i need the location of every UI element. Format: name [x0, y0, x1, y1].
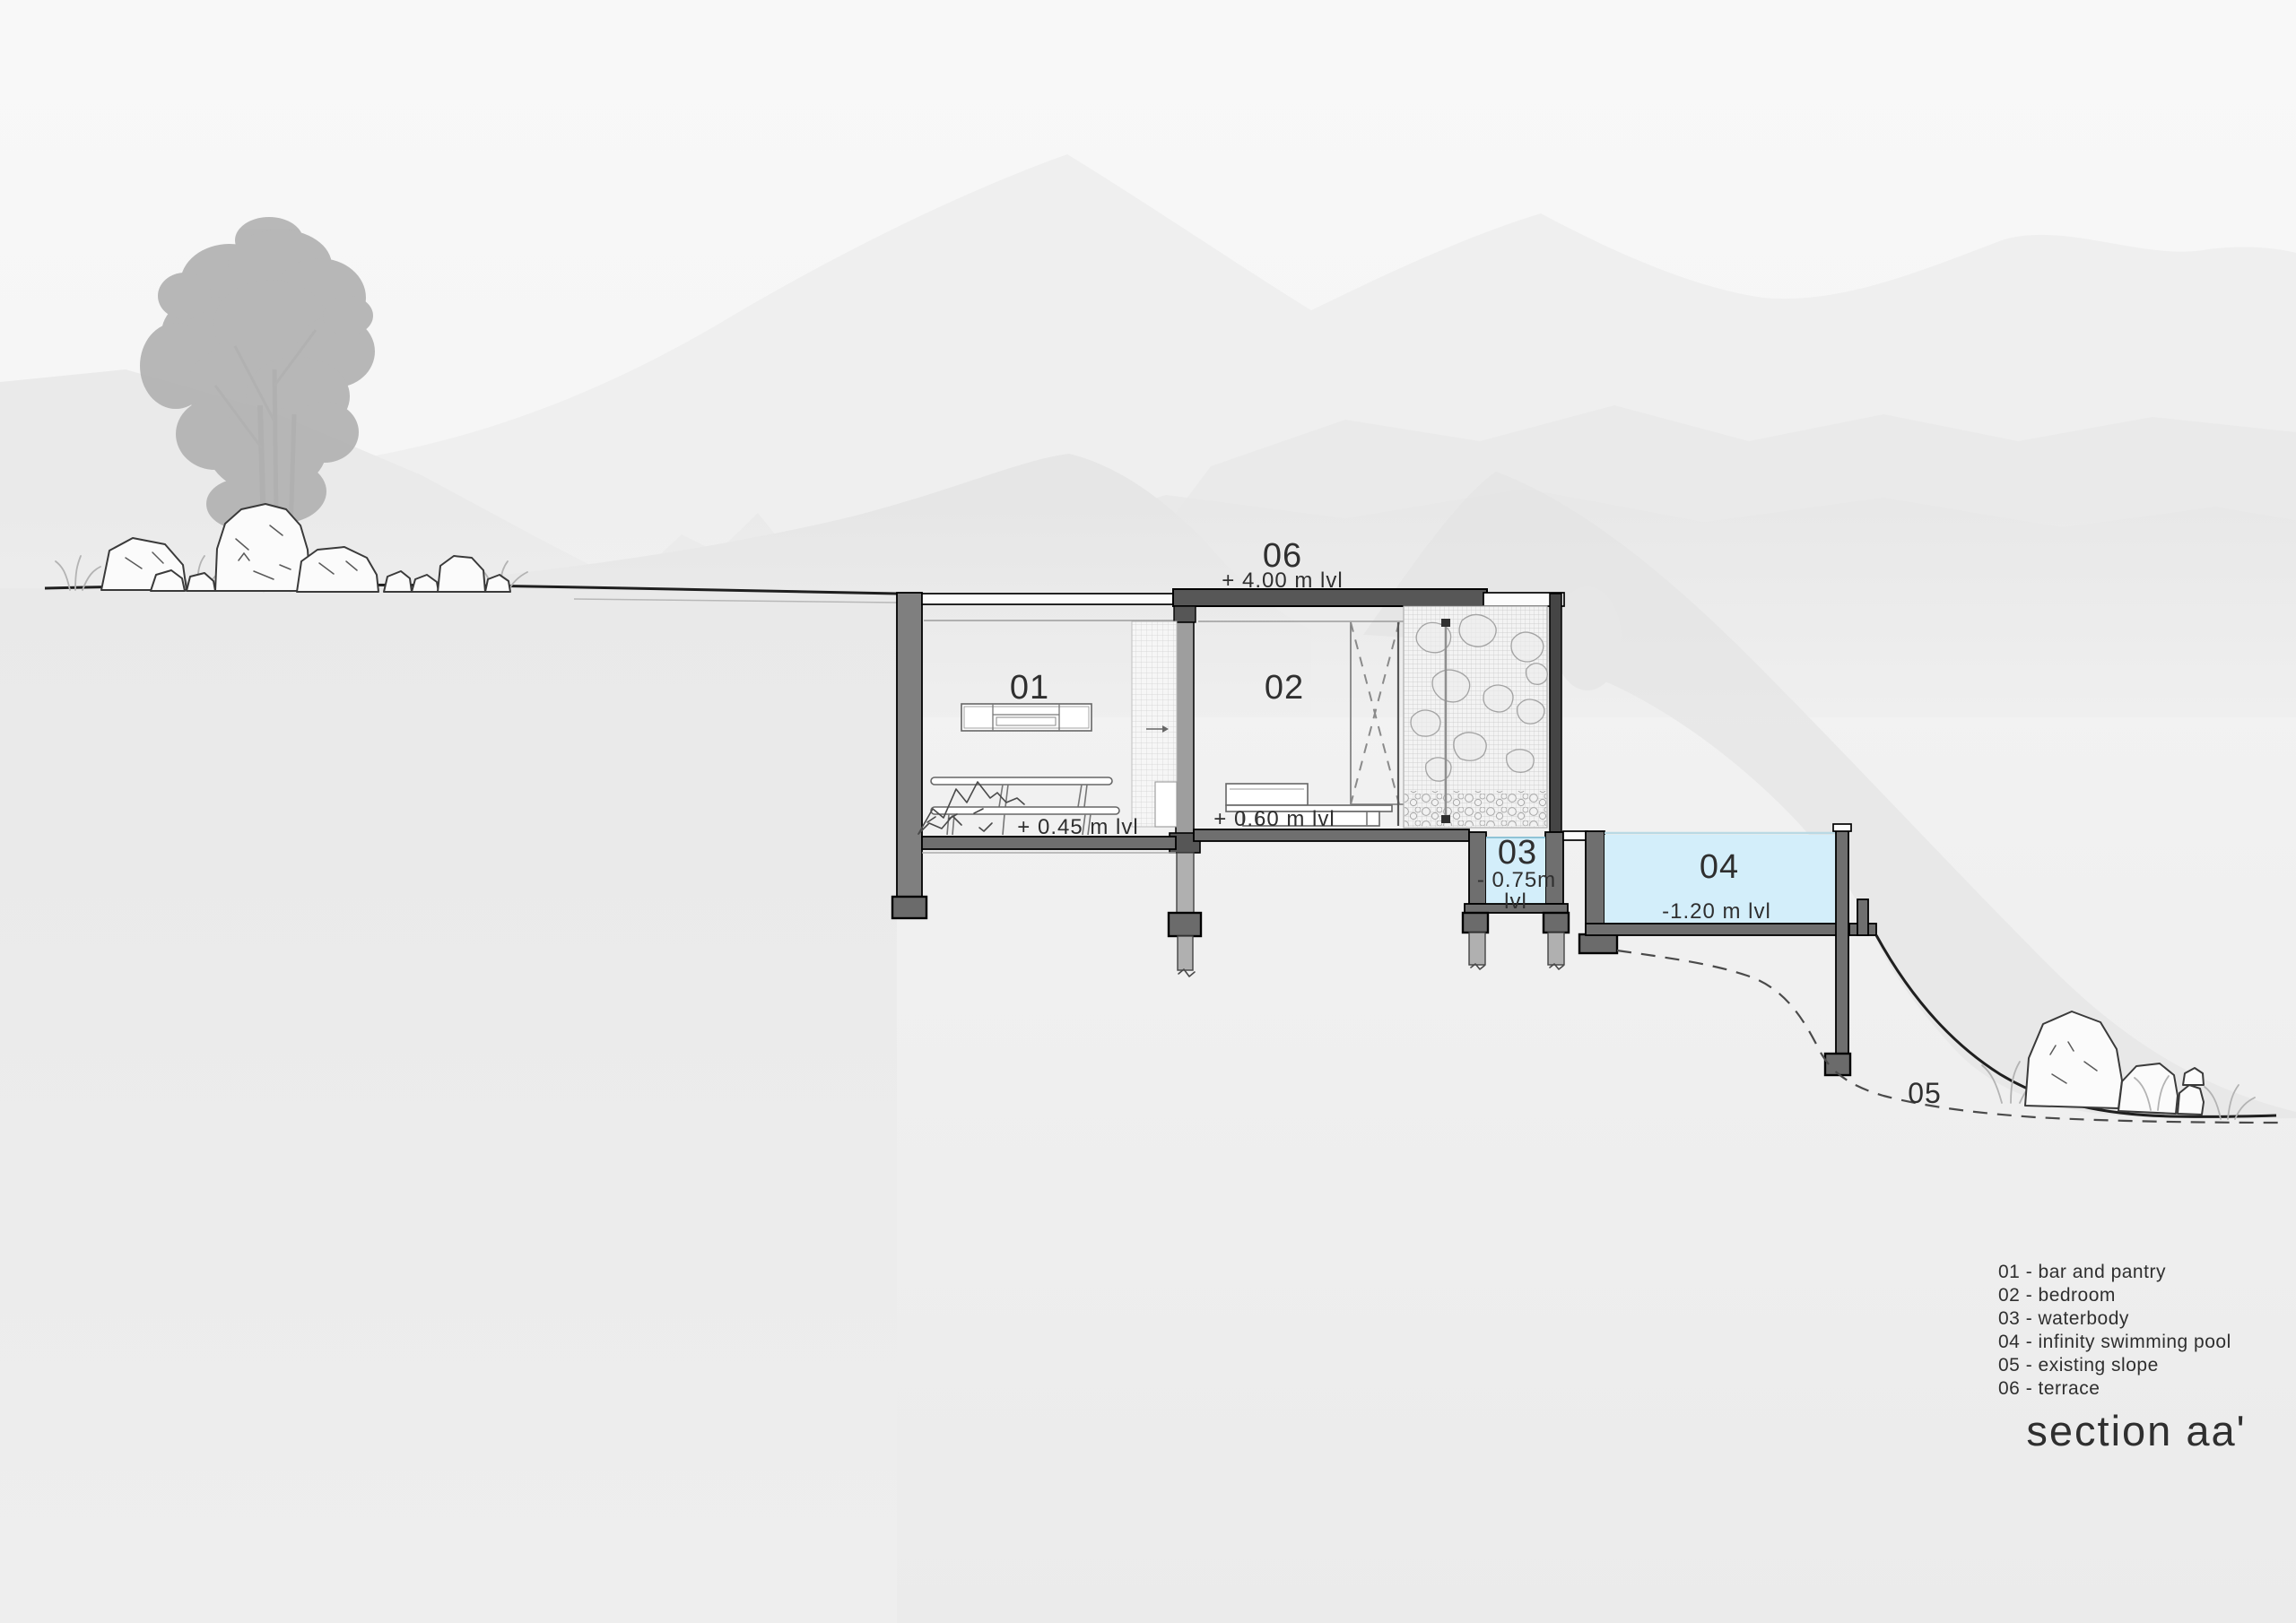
waterbody-footing — [1544, 913, 1569, 933]
roof-slab-room01 — [922, 594, 1197, 604]
legend-item: 04 - infinity swimming pool — [1998, 1332, 2231, 1352]
legend-item: 05 - existing slope — [1998, 1355, 2159, 1376]
label-room-02: 02 — [1265, 669, 1304, 707]
bar-counter-top — [931, 777, 1112, 785]
deck-slab — [1563, 831, 1587, 840]
label-waterbody-03: 03 — [1498, 834, 1537, 872]
wall-right-thin — [1550, 594, 1561, 832]
terrain-left — [0, 585, 897, 1623]
bar-counter-shelf — [931, 807, 1119, 814]
pool-pier-footing — [1825, 1054, 1850, 1075]
pool-wall-cap — [1833, 824, 1851, 831]
tiled-wall-counter — [1155, 782, 1177, 827]
level-terrace: + 4.00 m lvl — [1222, 568, 1343, 593]
legend-item: 06 - terrace — [1998, 1378, 2100, 1399]
gabion-wall — [1404, 606, 1547, 828]
waterbody-pier — [1469, 933, 1485, 965]
beam-middle — [1174, 606, 1196, 622]
level-waterbody-unit: lvl — [1504, 890, 1527, 914]
legend-item: 03 - waterbody — [1998, 1308, 2129, 1329]
label-room-01: 01 — [1010, 669, 1049, 707]
pool-upstand — [1857, 899, 1868, 935]
legend-item: 01 - bar and pantry — [1998, 1262, 2166, 1282]
wall-middle-footing — [1169, 913, 1201, 936]
bed-headboard — [1226, 784, 1308, 805]
waterbody-pier — [1548, 933, 1564, 965]
drawing-title: section aa' — [2026, 1407, 2246, 1454]
label-slope-05: 05 — [1908, 1077, 1942, 1109]
label-pool-04: 04 — [1700, 848, 1739, 886]
wall-left-footing — [892, 897, 926, 918]
level-waterbody: - 0.75m — [1477, 868, 1556, 892]
gabion-post-anchor — [1441, 619, 1450, 627]
wall-middle-stub — [1178, 936, 1193, 970]
waterbody-footing — [1463, 913, 1488, 933]
gabion-pebbles — [1405, 791, 1546, 826]
pool-footing-left — [1579, 934, 1617, 953]
wall-left — [897, 593, 922, 898]
level-pool: -1.20 m lvl — [1662, 899, 1771, 924]
wall-middle — [1176, 622, 1194, 834]
pool-wall-left — [1586, 831, 1605, 934]
gabion-post-anchor — [1441, 815, 1450, 823]
legend-item: 02 - bedroom — [1998, 1285, 2116, 1306]
pool-floor-slab — [1586, 924, 1849, 935]
level-room02: + 0.60 m lvl — [1213, 807, 1335, 831]
pool-wall-right — [1836, 829, 1848, 1054]
wall-middle-pier — [1177, 853, 1194, 913]
section-drawing: 06 + 4.00 m lvl 01 02 + 0.45 m lvl + 0.6… — [0, 0, 2296, 1623]
earth-mass — [0, 585, 897, 1623]
level-room01: + 0.45 m lvl — [1017, 815, 1138, 839]
